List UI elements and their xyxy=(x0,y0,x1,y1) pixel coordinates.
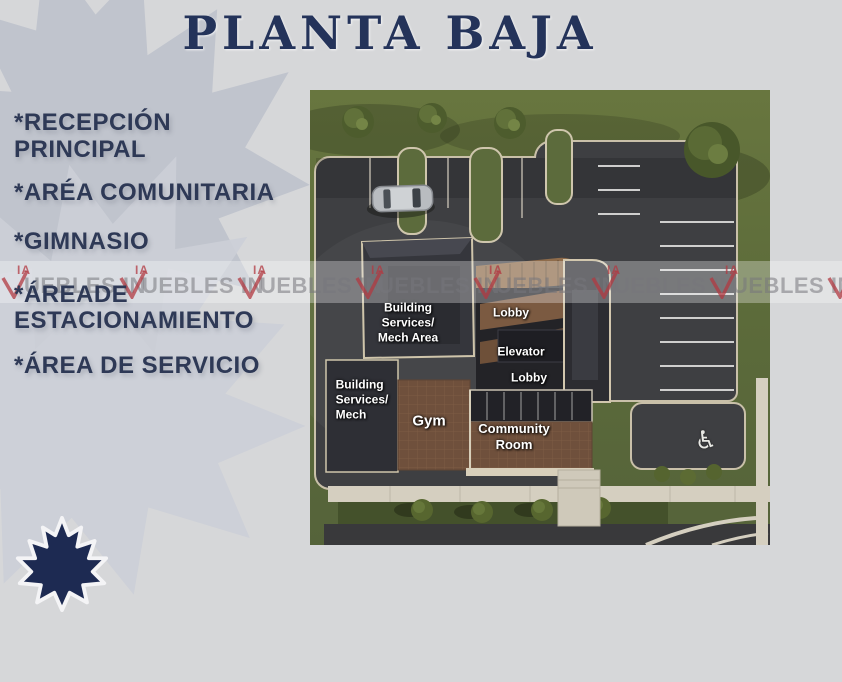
car xyxy=(366,185,435,219)
brand-leaf-logo xyxy=(14,516,110,612)
watermark-unit: IA UEBLES IN xyxy=(354,261,472,303)
feature-item-gimnasio: *GIMNASIO xyxy=(14,229,316,256)
watermark-prefix: IA xyxy=(607,263,621,277)
watermark-unit: IA UEBLES IN xyxy=(472,261,590,303)
brand-check-icon: IA xyxy=(826,269,842,299)
feature-item-area-comunitaria: *ARÉA COMUNITARIA xyxy=(14,180,316,207)
watermark-prefix: IA xyxy=(725,263,739,277)
watermark-unit: IA UEBLES IN xyxy=(826,261,842,303)
watermark-prefix: IA xyxy=(371,263,385,277)
floorplan-image: Building Services/ Mech Area Lobby Eleva… xyxy=(310,90,770,545)
feature-list: *RECEPCIÓN PRINCIPAL *ARÉA COMUNITARIA *… xyxy=(14,110,316,380)
room-label-elevator: Elevator xyxy=(497,345,544,360)
brand-check-icon: IA xyxy=(472,269,502,299)
brand-check-icon: IA xyxy=(354,269,384,299)
watermark-unit: IA UEBLES IN xyxy=(590,261,708,303)
brand-check-icon: IA xyxy=(708,269,738,299)
feature-item-servicio: *ÁREA DE SERVICIO xyxy=(14,353,316,380)
page-title: PLANTA BAJA xyxy=(140,6,640,60)
brand-check-icon: IA xyxy=(590,269,620,299)
room-label-gym: Gym xyxy=(412,413,445,432)
wheelchair-icon: ♿ xyxy=(695,426,717,455)
room-label-mech: Building Services/ Mech xyxy=(336,378,389,423)
room-label-lobby-upper: Lobby xyxy=(493,306,529,321)
watermark-prefix: IA xyxy=(489,263,503,277)
room-label-lobby-lower: Lobby xyxy=(511,371,547,386)
watermark-unit: IA UEBLES IN xyxy=(708,261,826,303)
room-label-community-room: Community Room xyxy=(478,421,550,454)
feature-item-estacionamiento: *ÁREADE ESTACIONAMIENTO xyxy=(14,282,316,336)
room-label-mech-area: Building Services/ Mech Area xyxy=(378,301,438,346)
feature-item-recepcion: *RECEPCIÓN PRINCIPAL xyxy=(14,110,316,164)
slide: { "slide": { "title": "PLANTA BAJA" }, "… xyxy=(0,0,842,566)
